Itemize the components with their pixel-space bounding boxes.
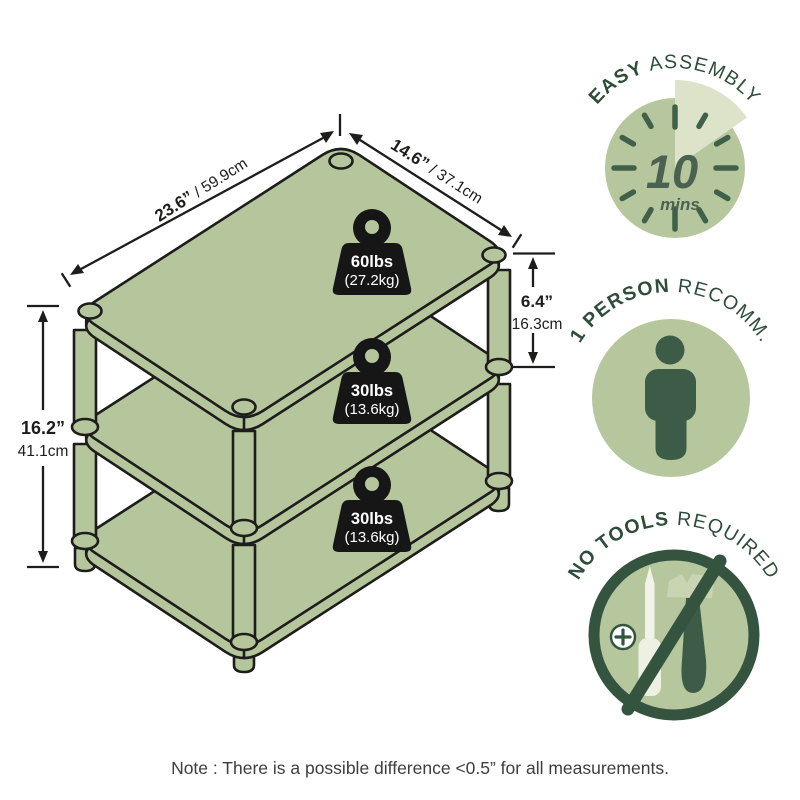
measurement-note: Note : There is a possible difference <0… (40, 758, 800, 779)
total-height-inches: 16.2” (21, 418, 65, 438)
shelf-illustration: 60lbs (27.2kg) 30lbs (13.6kg) 30lbs (13.… (0, 0, 565, 710)
no-tools-badge: NO TOOLS REQUIRED (549, 498, 799, 743)
assembly-minutes-unit: mins (660, 195, 700, 214)
capacity-kg: (27.2kg) (344, 272, 399, 289)
total-height-cm: 41.1cm (18, 443, 69, 460)
capacity-lbs: 30lbs (351, 382, 393, 400)
easy-assembly-badge: 10 mins EASY ASSEMBLY (550, 30, 800, 270)
capacity-lbs: 60lbs (351, 253, 393, 271)
capacity-lbs: 30lbs (351, 510, 393, 528)
capacity-kg: (13.6kg) (344, 529, 399, 546)
one-person-badge: 1 PERSON RECOMM. (546, 260, 796, 510)
assembly-minutes: 10 (646, 145, 698, 198)
capacity-kg: (13.6kg) (344, 401, 399, 418)
product-dimension-sheet: 60lbs (27.2kg) 30lbs (13.6kg) 30lbs (13.… (0, 0, 800, 800)
dimension-total-height: 16.2” 41.1cm (18, 306, 69, 567)
